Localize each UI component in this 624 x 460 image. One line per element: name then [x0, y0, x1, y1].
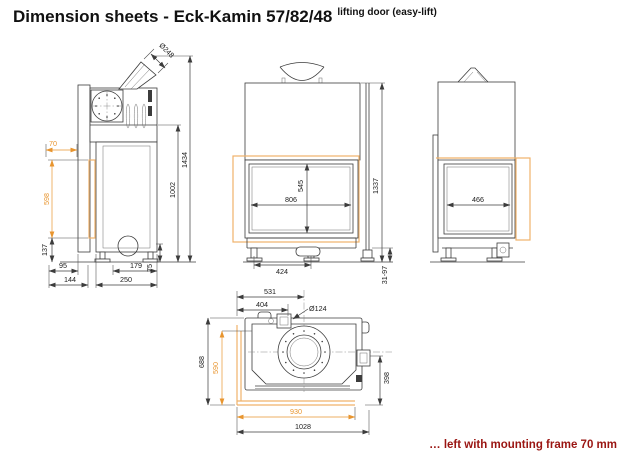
door-section — [245, 160, 358, 238]
dim-frame-width: 930 — [290, 407, 302, 416]
dim-foot-spacing: 424 — [276, 267, 288, 276]
foot-stem — [492, 248, 497, 258]
foot-pad — [95, 259, 110, 262]
side-bar-lower — [148, 106, 152, 116]
dim-side-glass-width: 466 — [472, 195, 484, 204]
dim-overall-width: 1028 — [295, 422, 311, 431]
dim-foot-height: 75 — [145, 264, 154, 272]
dim-back-depth: 144 — [64, 275, 76, 284]
top-housing — [90, 88, 157, 142]
connector-box — [497, 243, 509, 257]
foot-stem — [100, 252, 105, 259]
dim-body-height: 1002 — [168, 182, 177, 198]
air-spigot-front — [296, 247, 320, 256]
back-strip — [433, 135, 438, 252]
dim-air-inlet-diameter: Ø124 — [309, 304, 327, 313]
side-view-left: Ø248 1434 1002 70 598 137 95 144 179 250 — [40, 41, 196, 288]
flue-saddle-top — [280, 63, 324, 68]
firebox-body — [96, 142, 157, 252]
dimension-sheet-page: { "header": { "title": "Dimension sheets… — [0, 0, 624, 460]
back-panel — [78, 85, 90, 252]
dim-foot-offset: 179 — [130, 261, 142, 270]
air-inlet-box — [277, 314, 291, 328]
mounting-frame-note: … left with mounting frame 70 mm — [429, 439, 617, 451]
dim-plinth-height: 137 — [40, 244, 49, 256]
dim-flue-center-offset: 531 — [264, 287, 276, 296]
dim-corner-offset: 398 — [382, 372, 391, 384]
dim-air-inlet-offset: 404 — [256, 300, 268, 309]
side-view-right: 466 — [430, 68, 530, 262]
dim-glass-width: 806 — [285, 195, 297, 204]
dim-frame-height: 598 — [42, 193, 51, 205]
dim-glass-height: 545 — [296, 180, 305, 192]
flue-stub — [119, 62, 156, 89]
dim-frame-depth-plan: 590 — [211, 362, 220, 374]
flue-gusset — [458, 68, 488, 82]
dim-frame-depth: 70 — [49, 139, 57, 148]
foot-pad — [143, 259, 158, 262]
upper-body — [245, 83, 360, 160]
foot-pad — [441, 258, 456, 261]
air-diameter-leader — [293, 309, 308, 319]
dim-overall-height: 1434 — [180, 152, 189, 168]
dim-foot-adjust-range: 31-97 — [380, 266, 389, 284]
plan-view: 531 404 Ø124 688 590 398 930 1028 — [197, 287, 392, 435]
latch-block — [356, 375, 362, 382]
foot-stem — [148, 252, 153, 259]
mounting-frame-right — [516, 158, 530, 240]
foot-pad — [247, 258, 262, 261]
side-bar-upper — [148, 90, 152, 102]
foot-pad — [487, 258, 502, 261]
right-connector — [357, 350, 370, 366]
flue-flange — [278, 326, 330, 378]
dim-back-offset: 95 — [59, 261, 67, 270]
foot-stem — [446, 248, 451, 258]
technical-drawing: Ø248 1434 1002 70 598 137 95 144 179 250 — [0, 0, 624, 460]
foot-pad — [304, 258, 319, 261]
dim-overall-depth: 688 — [197, 356, 206, 368]
front-view: 545 806 1337 424 31-97 — [233, 63, 393, 285]
dim-flue-diameter: Ø248 — [157, 41, 176, 60]
dim-overall-height-front: 1337 — [371, 178, 380, 194]
dim-body-depth: 250 — [120, 275, 132, 284]
flue-saddle-bowl — [280, 67, 324, 81]
